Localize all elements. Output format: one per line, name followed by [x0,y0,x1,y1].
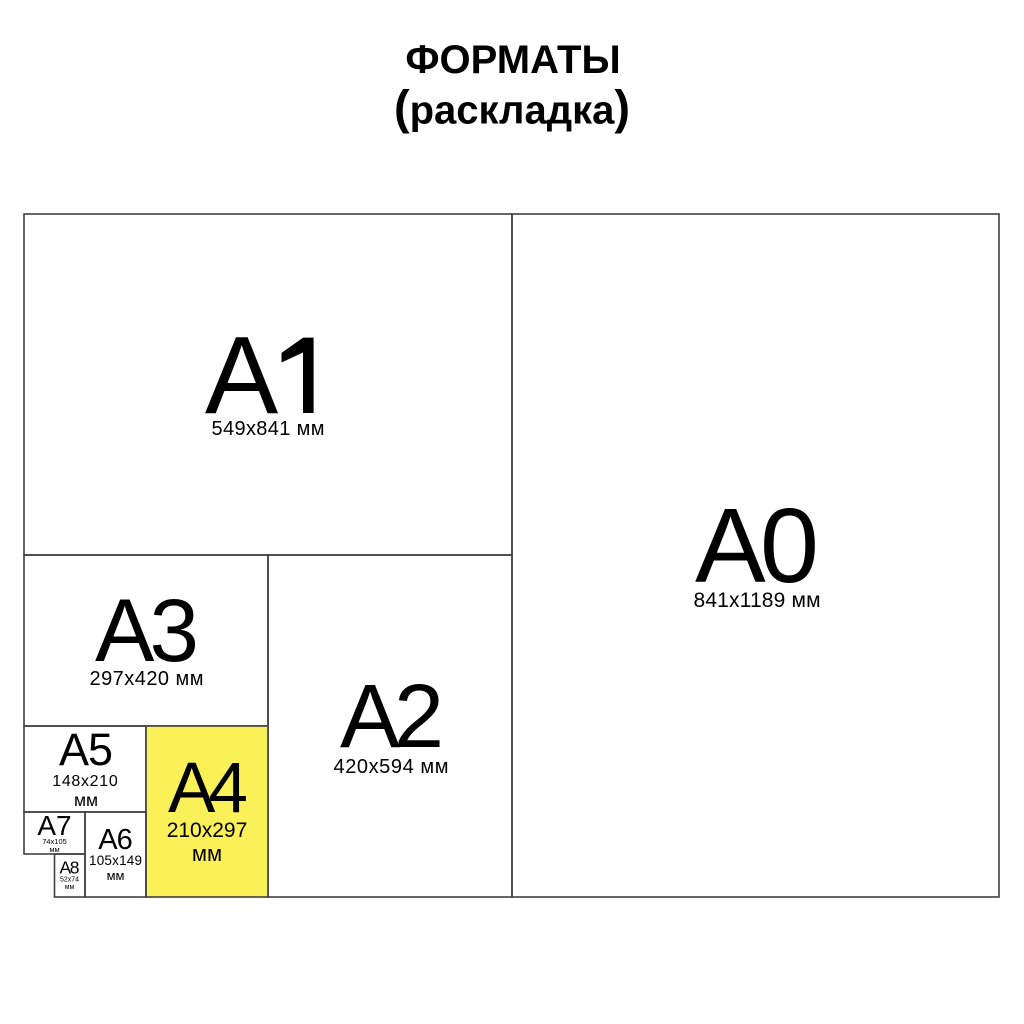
svg-text:A2: A2 [340,667,444,767]
svg-text:A0: A0 [695,487,819,605]
svg-text:105x149: 105x149 [89,853,142,868]
svg-text:(раскладка): (раскладка) [394,81,630,134]
svg-text:мм: мм [192,841,222,866]
svg-text:841x1189 мм: 841x1189 мм [694,589,821,612]
svg-text:мм: мм [74,790,98,810]
svg-text:297x420 мм: 297x420 мм [90,668,204,690]
svg-text:ФОРМАТЫ: ФОРМАТЫ [405,38,620,82]
svg-text:52x74: 52x74 [60,877,79,884]
svg-text:A4: A4 [168,749,248,828]
svg-text:A6: A6 [98,824,133,856]
svg-text:A3: A3 [95,580,199,680]
svg-text:мм: мм [107,868,125,883]
svg-text:210x297: 210x297 [167,819,248,842]
svg-text:549x841 мм: 549x841 мм [212,418,325,440]
svg-text:A8: A8 [60,858,80,878]
svg-text:A5: A5 [59,724,113,775]
svg-text:148x210: 148x210 [52,773,118,790]
svg-text:420x594 мм: 420x594 мм [334,756,449,778]
svg-text:мм: мм [49,845,59,854]
svg-text:мм: мм [65,884,75,891]
